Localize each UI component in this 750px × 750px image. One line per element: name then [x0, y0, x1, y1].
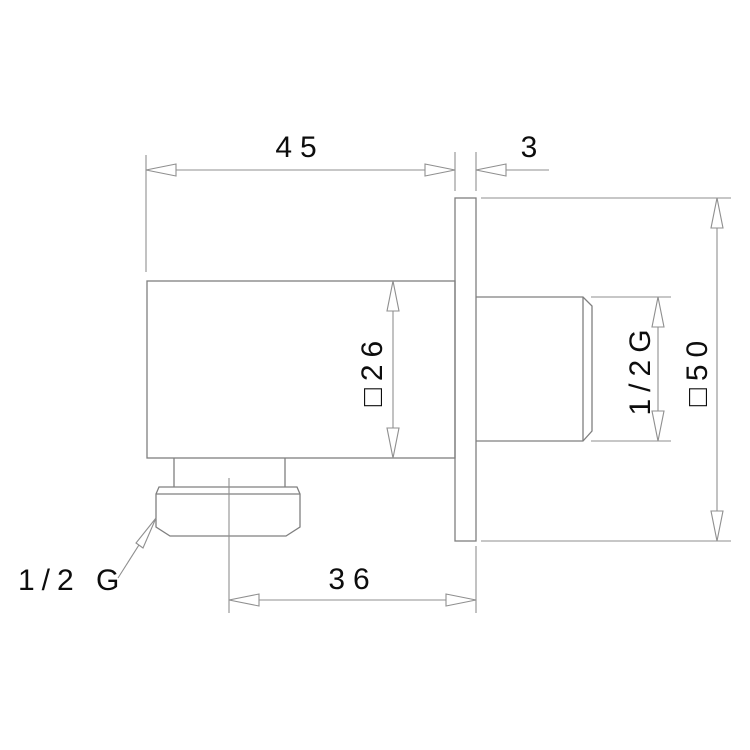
dim-plate-thickness-label: 3	[521, 131, 546, 164]
dimension-boss-thread: 1/2G	[591, 297, 671, 441]
arrowhead-left	[476, 164, 506, 176]
elbow-dimension-drawing: 45 3 □26 1/2G	[0, 0, 750, 750]
dimension-body-square: □26	[356, 281, 399, 458]
body-outline	[147, 281, 455, 458]
dim-boss-thread-label: 1/2G	[624, 322, 657, 415]
leader-arrowhead	[136, 518, 156, 548]
dim-outlet-thread-label: 1/2 G	[18, 564, 126, 597]
arrowhead-left	[229, 594, 259, 606]
dim-outlet-offset-label: 36	[328, 563, 377, 596]
dim-body-square-label: □26	[356, 334, 389, 407]
arrowhead-right	[425, 164, 455, 176]
arrowhead-down	[711, 511, 723, 541]
dimension-plate-square: □50	[481, 198, 731, 541]
arrowhead-down	[387, 428, 399, 458]
arrowhead-right	[446, 594, 476, 606]
thread-boss-outline	[476, 297, 592, 441]
dim-plate-square-label: □50	[681, 334, 714, 407]
arrowhead-up	[711, 198, 723, 228]
wall-plate-outline	[455, 198, 476, 541]
dim-body-width-label: 45	[275, 131, 324, 164]
dimension-plate-thickness: 3	[476, 131, 549, 191]
arrowhead-up	[387, 281, 399, 311]
technical-drawing-canvas: 45 3 □26 1/2G	[0, 0, 750, 750]
dimension-body-width: 45	[146, 131, 455, 272]
leader-outlet-thread: 1/2 G	[18, 518, 156, 597]
dimension-outlet-offset: 36	[229, 546, 476, 613]
arrowhead-left	[146, 164, 176, 176]
